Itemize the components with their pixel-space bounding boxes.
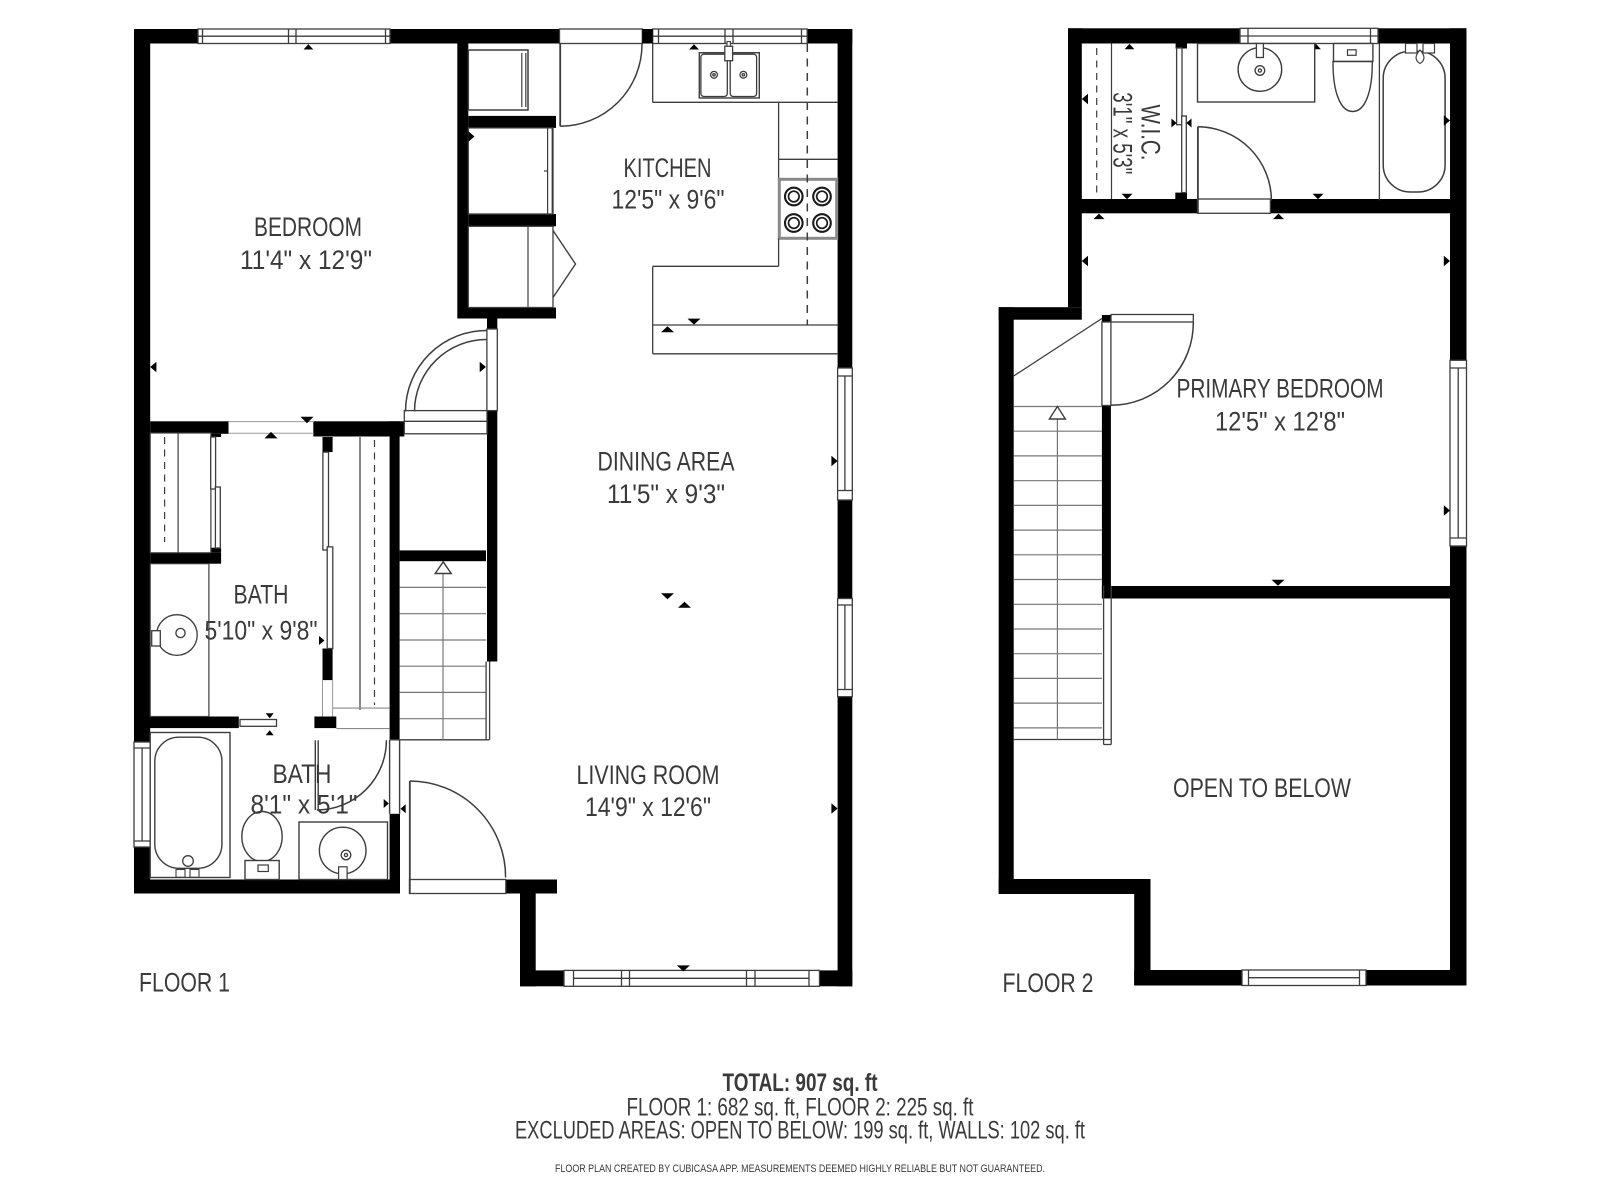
svg-text:BATH: BATH	[234, 580, 289, 610]
svg-text:W.I.C.: W.I.C.	[1136, 105, 1166, 161]
svg-text:FLOOR 2: FLOOR 2	[1003, 968, 1094, 998]
svg-text:EXCLUDED AREAS: OPEN TO BELOW:: EXCLUDED AREAS: OPEN TO BELOW: 199 sq. f…	[515, 1117, 1085, 1145]
svg-text:OPEN TO BELOW: OPEN TO BELOW	[1173, 773, 1351, 803]
svg-text:5'10" x 9'8": 5'10" x 9'8"	[205, 616, 318, 646]
svg-text:3'1" x 5'3": 3'1" x 5'3"	[1107, 92, 1137, 174]
svg-text:8'1" x 5'1": 8'1" x 5'1"	[251, 790, 358, 820]
svg-text:14'9" x 12'6": 14'9" x 12'6"	[585, 792, 711, 822]
svg-text:LIVING ROOM: LIVING ROOM	[577, 760, 720, 790]
svg-text:12'5" x 9'6": 12'5" x 9'6"	[612, 185, 725, 215]
svg-text:12'5" x 12'8": 12'5" x 12'8"	[1215, 407, 1345, 437]
svg-text:PRIMARY BEDROOM: PRIMARY BEDROOM	[1177, 374, 1384, 404]
svg-text:FLOOR PLAN CREATED BY CUBICASA: FLOOR PLAN CREATED BY CUBICASA APP. MEAS…	[555, 1163, 1045, 1175]
svg-text:11'4" x 12'9": 11'4" x 12'9"	[240, 245, 372, 275]
svg-text:BATH: BATH	[273, 759, 332, 789]
svg-text:BEDROOM: BEDROOM	[254, 212, 362, 242]
svg-text:DINING AREA: DINING AREA	[598, 447, 735, 477]
svg-text:FLOOR 1: FLOOR 1	[139, 968, 230, 998]
svg-text:11'5" x 9'3": 11'5" x 9'3"	[607, 479, 725, 509]
svg-text:KITCHEN: KITCHEN	[624, 153, 712, 183]
